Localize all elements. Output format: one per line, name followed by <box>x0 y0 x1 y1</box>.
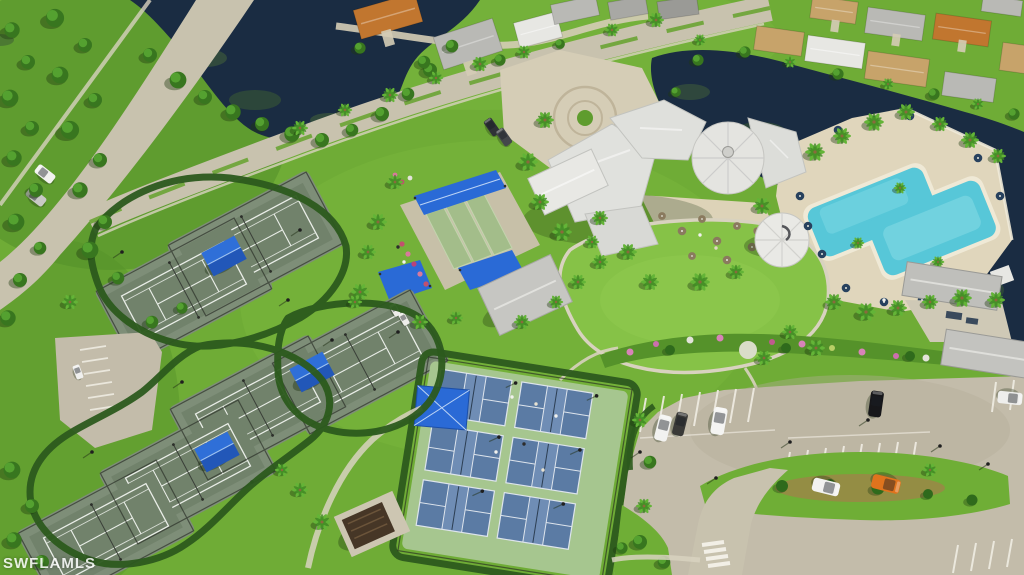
watermark: SWFLAMLS <box>3 555 96 572</box>
lawn-highlight <box>600 255 780 345</box>
aerial-scene <box>0 0 1024 575</box>
house-roof <box>999 42 1024 73</box>
white-flowering-tree <box>739 341 757 359</box>
aerial-photo: SWFLAMLS <box>0 0 1024 575</box>
clubhouse-rotunda-roof <box>692 122 764 194</box>
